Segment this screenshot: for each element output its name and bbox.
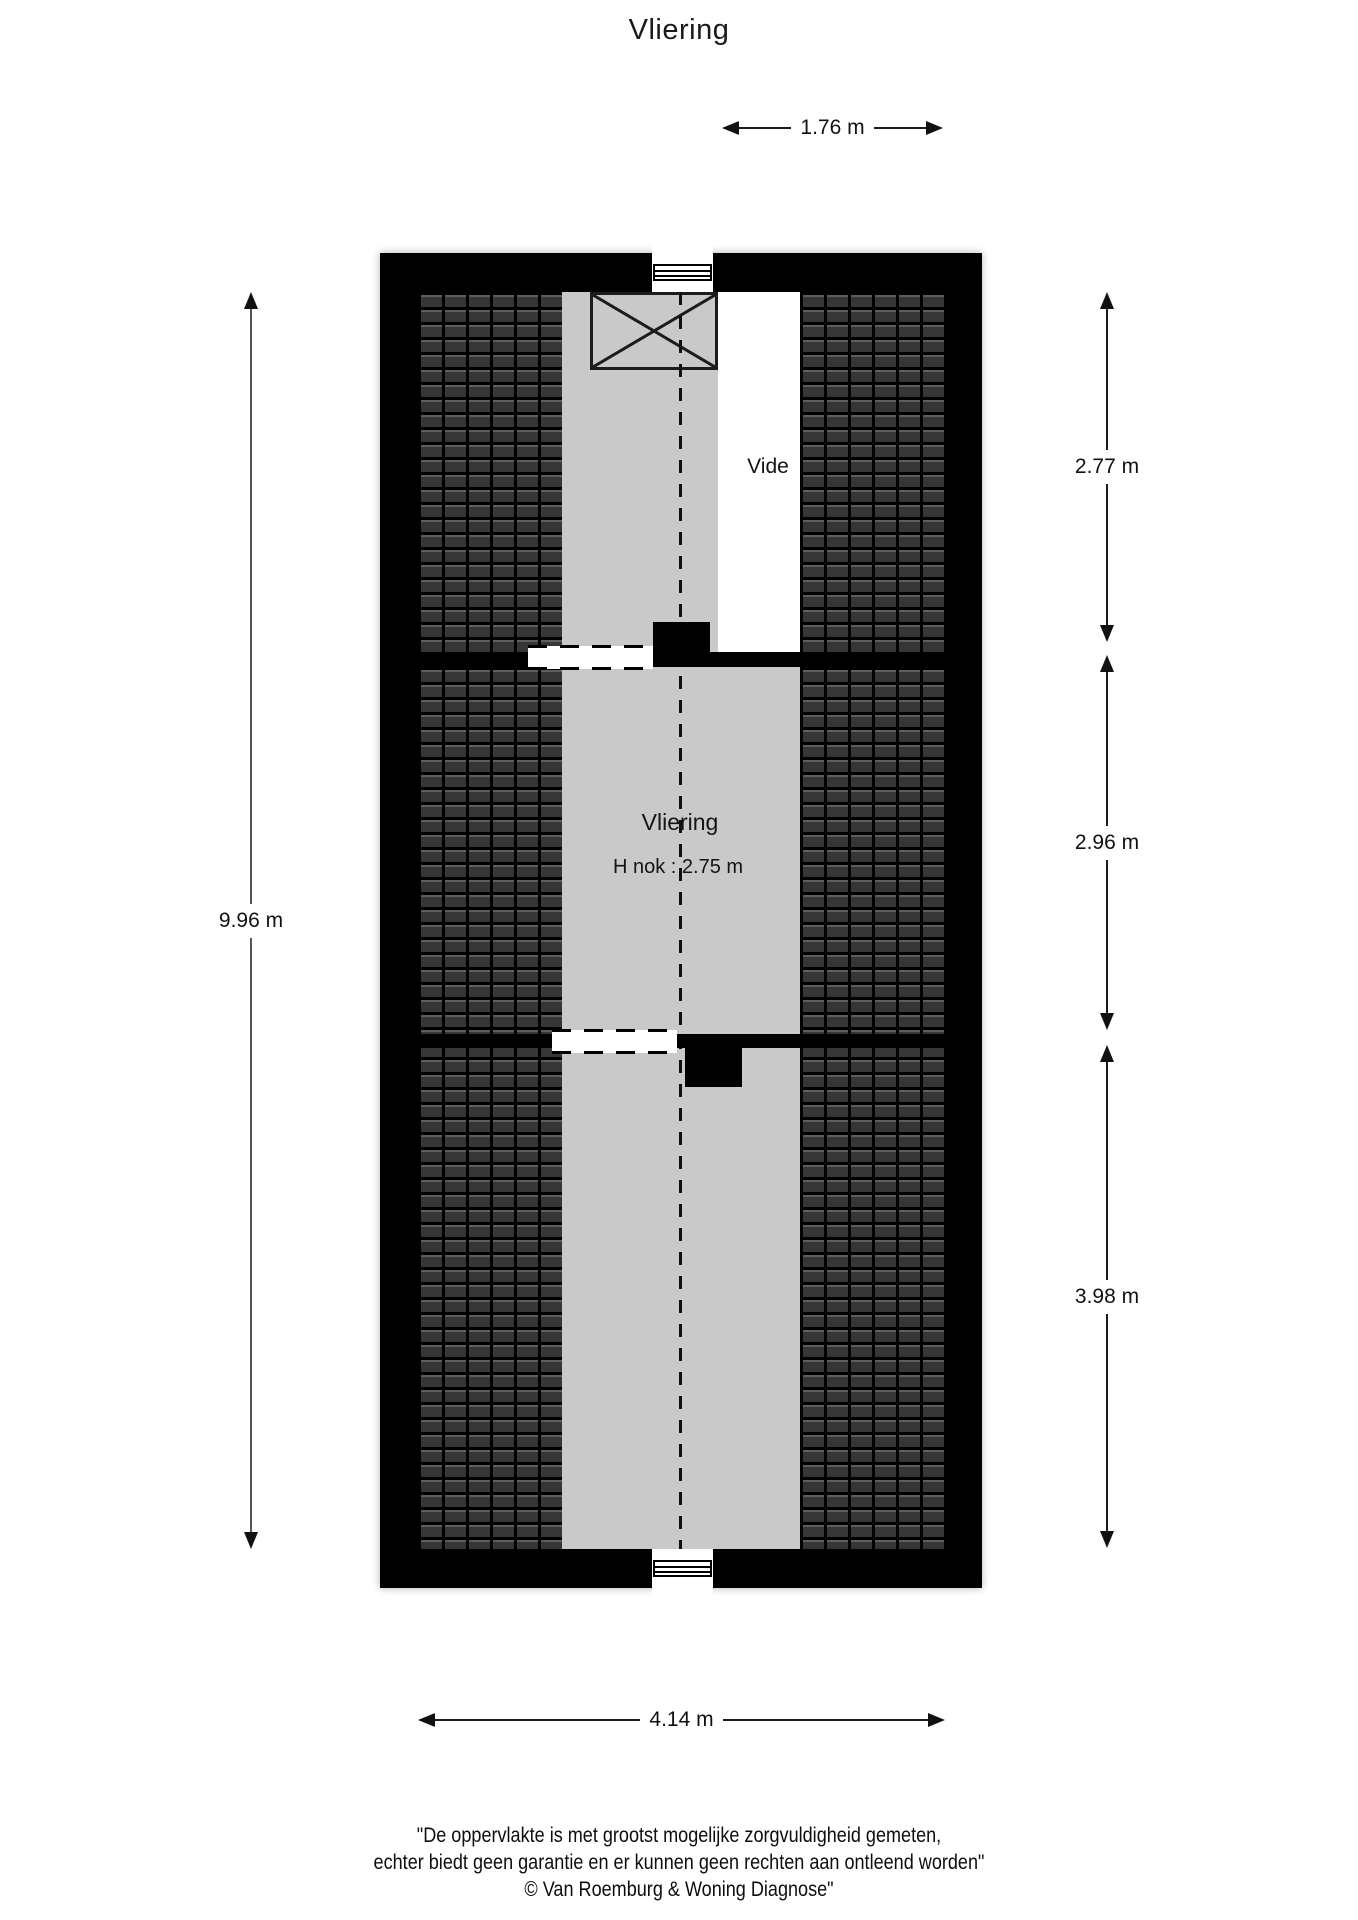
arrowhead-up-icon — [1100, 292, 1114, 309]
dimension-line — [874, 127, 926, 129]
dimension-right-section-2: 2.96 m — [1067, 655, 1147, 1030]
dimension-top-width: 1.76 m — [722, 112, 943, 144]
dimension-line — [739, 127, 791, 129]
dimension-top-label: 1.76 m — [791, 116, 873, 140]
arrowhead-down-icon — [1100, 625, 1114, 642]
wall-opening-2 — [552, 1030, 677, 1053]
dimension-right-label-2: 2.96 m — [1075, 826, 1139, 860]
dimension-line — [1106, 672, 1108, 826]
dimension-bottom-width: 4.14 m — [418, 1704, 945, 1736]
arrowhead-up-icon — [1100, 1045, 1114, 1062]
dimension-line — [250, 309, 252, 904]
arrowhead-up-icon — [1100, 655, 1114, 672]
dimension-line — [250, 938, 252, 1533]
disclaimer-text: "De oppervlakte is met grootst mogelijke… — [95, 1822, 1263, 1903]
arrowhead-right-icon — [928, 1713, 945, 1727]
divider-wall-2 — [418, 1034, 945, 1048]
disclaimer-line-3: © Van Roemburg & Woning Diagnose" — [95, 1876, 1263, 1903]
floorplan: Vide Vliering H nok : 2.75 m — [380, 253, 982, 1588]
window-frame-icon — [653, 264, 712, 281]
arrowhead-down-icon — [1100, 1013, 1114, 1030]
dimension-right-section-3: 3.98 m — [1067, 1045, 1147, 1548]
dimension-right-label-1: 2.77 m — [1075, 450, 1139, 484]
dimension-bottom-label: 4.14 m — [640, 1708, 722, 1732]
dimension-line — [1106, 1062, 1108, 1280]
ridge-dashed-line — [679, 292, 682, 1549]
dimension-line — [1106, 484, 1108, 625]
arrowhead-left-icon — [722, 121, 739, 135]
arrowhead-right-icon — [926, 121, 943, 135]
dimension-line — [1106, 309, 1108, 450]
dimension-line — [1106, 860, 1108, 1014]
dimension-left-height: 9.96 m — [211, 292, 291, 1549]
arrowhead-down-icon — [1100, 1531, 1114, 1548]
disclaimer-line-2: echter biedt geen garantie en er kunnen … — [95, 1849, 1263, 1876]
dimension-right-label-3: 3.98 m — [1075, 1280, 1139, 1314]
window-top — [652, 241, 713, 292]
dimension-right-section-1: 2.77 m — [1067, 292, 1147, 642]
room-label: Vliering — [580, 809, 780, 836]
wall-opening-1 — [528, 646, 653, 669]
ridge-height-label: H nok : 2.75 m — [558, 856, 798, 879]
wall-pillar-2 — [685, 1034, 742, 1087]
roof-tiles-left — [418, 292, 562, 1549]
window-frame-icon — [653, 1560, 712, 1577]
arrowhead-down-icon — [244, 1532, 258, 1549]
dimension-line — [1106, 1314, 1108, 1532]
vide-label: Vide — [718, 455, 818, 479]
dimension-line — [723, 1719, 928, 1721]
roof-tiles-right — [800, 292, 945, 1549]
page-title: Vliering — [0, 14, 1358, 47]
dimension-line — [435, 1719, 640, 1721]
dimension-left-label: 9.96 m — [219, 904, 283, 938]
arrowhead-left-icon — [418, 1713, 435, 1727]
skylight-cross-icon — [590, 292, 718, 370]
wall-pillar-1 — [653, 622, 710, 667]
disclaimer-line-1: "De oppervlakte is met grootst mogelijke… — [95, 1822, 1263, 1849]
window-bottom — [652, 1549, 713, 1600]
floorplan-page: Vliering 1.76 m 9.96 m 2.77 m 2.96 m 3.9… — [0, 0, 1358, 1920]
arrowhead-up-icon — [244, 292, 258, 309]
